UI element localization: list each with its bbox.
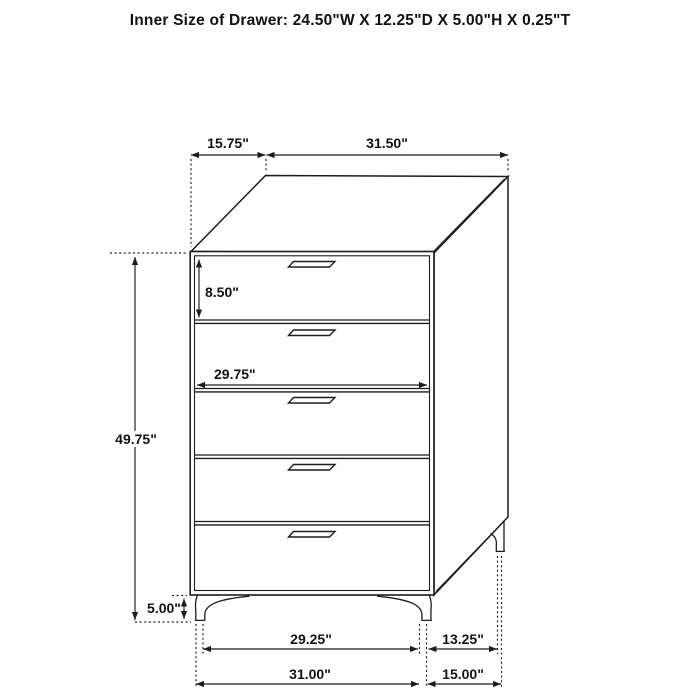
dim-label-overall-width: 31.00" xyxy=(289,666,331,682)
dimension-diagram-page: Inner Size of Drawer: 24.50"W X 12.25"D … xyxy=(0,0,700,700)
dim-label-front-feet-span: 29.25" xyxy=(290,631,332,647)
dim-label-top-depth: 15.75" xyxy=(207,135,249,151)
dim-label-side-feet-span: 13.25" xyxy=(442,631,484,647)
chest-drawing xyxy=(190,176,508,621)
furniture-dimension-diagram: 15.75" 31.50" 8.50" 29.75" 49.75" 5.00" … xyxy=(0,0,700,700)
dim-label-top-width: 31.50" xyxy=(366,135,408,151)
dim-label-leg-height: 5.00" xyxy=(147,600,181,616)
dim-label-overall-height: 49.75" xyxy=(115,431,157,447)
cabinet-front-face xyxy=(190,252,434,596)
front-left-leg xyxy=(195,595,249,620)
dim-label-drawer-height: 8.50" xyxy=(205,284,239,300)
front-right-leg xyxy=(378,595,432,620)
dim-label-inner-width: 29.75" xyxy=(214,366,256,382)
dim-label-overall-depth: 15.00" xyxy=(442,666,484,682)
